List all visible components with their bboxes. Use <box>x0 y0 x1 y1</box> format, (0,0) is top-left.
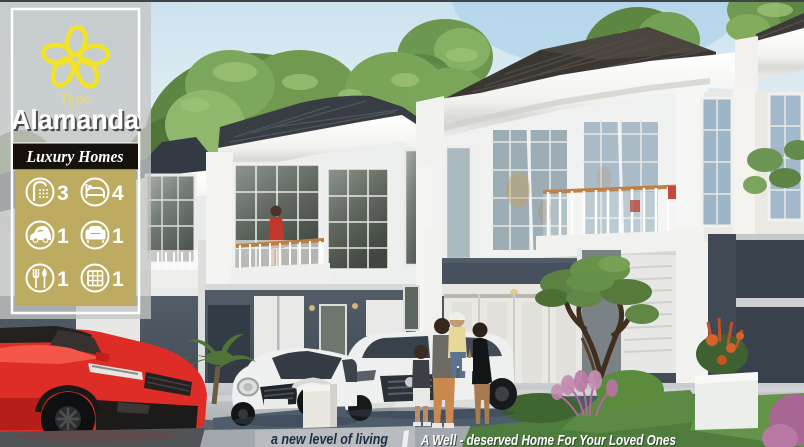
svg-text:1: 1 <box>57 225 69 248</box>
svg-text:Luxury Homes: Luxury Homes <box>26 147 124 166</box>
svg-text:1: 1 <box>57 268 69 291</box>
svg-text:1: 1 <box>112 225 124 248</box>
svg-text:1: 1 <box>112 268 124 291</box>
svg-text:3: 3 <box>57 182 69 205</box>
svg-text:4: 4 <box>112 182 124 205</box>
svg-text:a new level of living: a new level of living <box>271 432 388 447</box>
svg-text:A Well - deserved Home For You: A Well - deserved Home For Your Loved On… <box>420 433 676 447</box>
svg-text:Alamanda: Alamanda <box>11 104 139 135</box>
